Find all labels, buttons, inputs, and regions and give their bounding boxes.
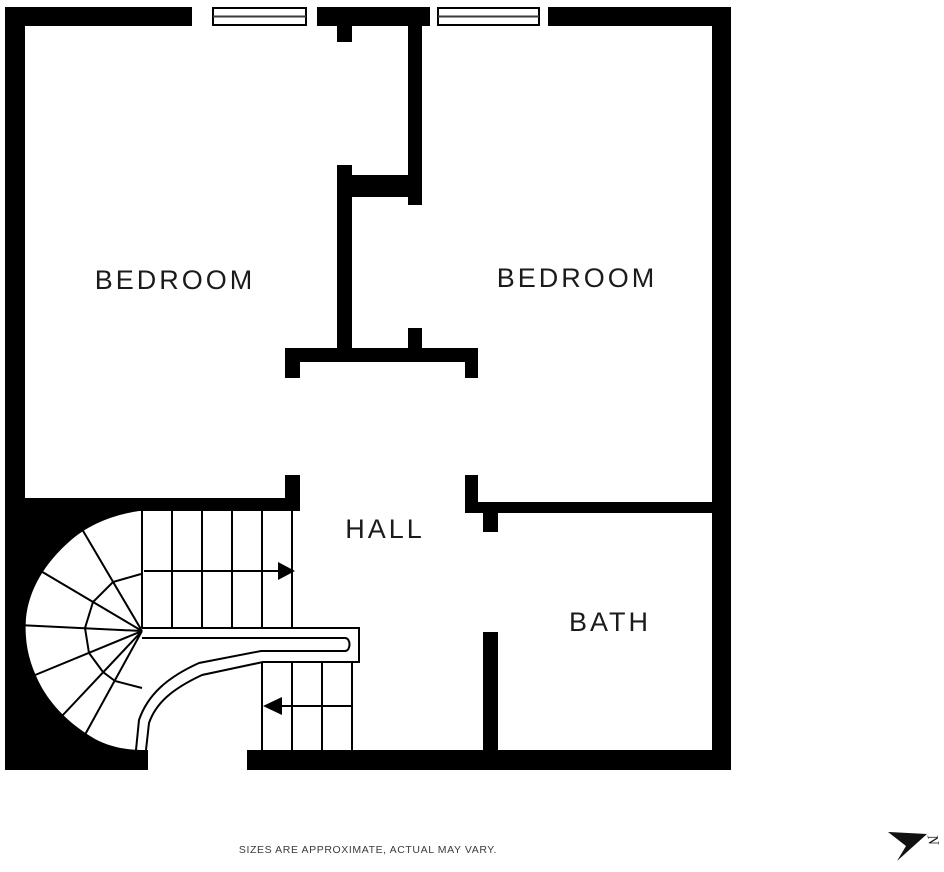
wall-bottom-segment-right — [247, 750, 731, 770]
stair-rail-inner — [136, 638, 350, 750]
room-label-bedroom-right: BEDROOM — [497, 263, 658, 293]
stair-corner-fill — [5, 511, 148, 770]
stair-arrow-right-icon — [144, 562, 295, 580]
hall-right-wall-stub — [465, 362, 478, 378]
stair-arrow-left-icon — [263, 697, 352, 715]
stair-rail-outer — [142, 628, 359, 750]
staircase — [5, 511, 359, 770]
wall-top-segment-right — [548, 7, 731, 26]
outer-walls — [5, 7, 731, 770]
window-right — [438, 8, 539, 25]
window-left — [213, 8, 306, 25]
compass-arrow — [888, 832, 927, 861]
bath-left-wall-upper — [483, 513, 498, 532]
hall-top-wall — [285, 348, 478, 362]
room-labels: BEDROOM BEDROOM HALL BATH — [95, 263, 658, 637]
wall-top-segment-middle — [317, 7, 430, 26]
wall-right — [712, 7, 731, 770]
bath-left-wall-lower — [483, 632, 498, 750]
wall-top-segment-left — [5, 7, 192, 26]
room-label-hall: HALL — [345, 514, 425, 544]
stair-upper-treads — [142, 511, 292, 628]
closet-left-wall-upper-stub — [337, 26, 352, 42]
closet-divider-wall — [337, 175, 422, 197]
hall-left-wall-stub — [285, 362, 300, 378]
room-label-bath: BATH — [569, 607, 651, 637]
floorplan-drawing: BEDROOM BEDROOM HALL BATH N — [0, 0, 944, 872]
floorplan-page: BEDROOM BEDROOM HALL BATH N SIZES ARE AP… — [0, 0, 944, 872]
disclaimer-text: SIZES ARE APPROXIMATE, ACTUAL MAY VARY. — [239, 844, 497, 856]
bath-top-wall — [473, 502, 731, 513]
compass-north-letter: N — [923, 833, 941, 848]
north-compass-icon: N — [888, 832, 941, 861]
room-label-bedroom-left: BEDROOM — [95, 265, 256, 295]
bedroom-left-bottom-wall — [25, 498, 300, 511]
